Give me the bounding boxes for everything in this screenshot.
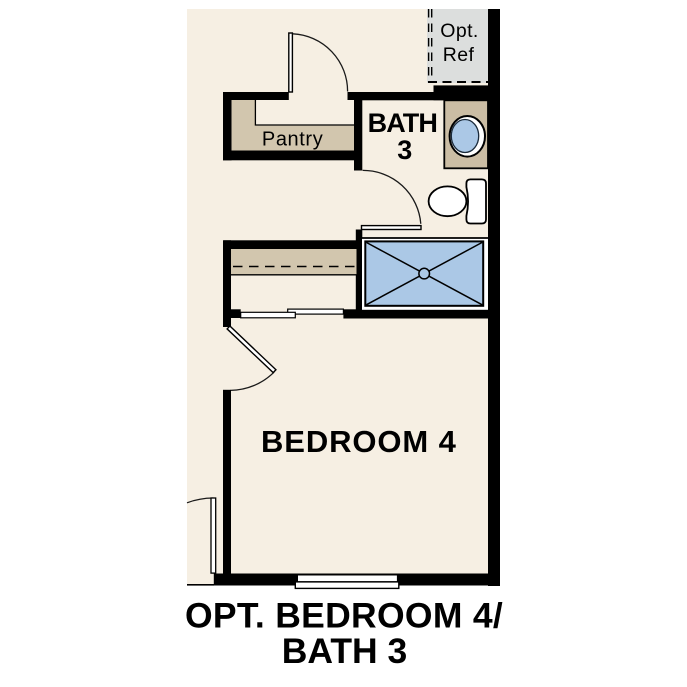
svg-text:BATH 3: BATH 3 — [282, 631, 408, 671]
svg-text:Ref: Ref — [443, 44, 475, 66]
svg-text:Pantry: Pantry — [262, 128, 323, 150]
svg-text:BEDROOM 4: BEDROOM 4 — [261, 424, 457, 459]
svg-text:Opt.: Opt. — [440, 20, 478, 42]
svg-text:BATH: BATH — [368, 108, 437, 138]
svg-text:OPT. BEDROOM 4/: OPT. BEDROOM 4/ — [185, 595, 503, 635]
svg-text:3: 3 — [397, 135, 412, 165]
